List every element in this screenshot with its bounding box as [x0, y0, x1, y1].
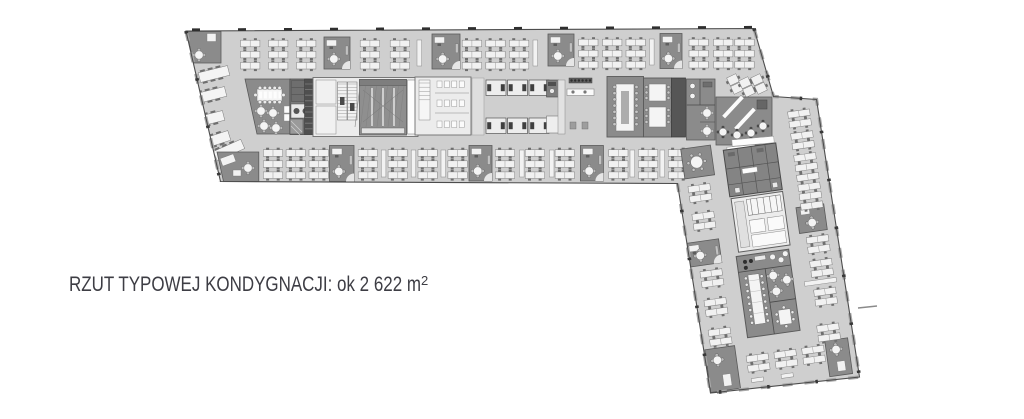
svg-text:2: 2: [421, 273, 428, 288]
svg-text:RZUT TYPOWEJ KONDYGNACJI: ok 2: RZUT TYPOWEJ KONDYGNACJI: ok 2 622 m: [69, 273, 421, 296]
